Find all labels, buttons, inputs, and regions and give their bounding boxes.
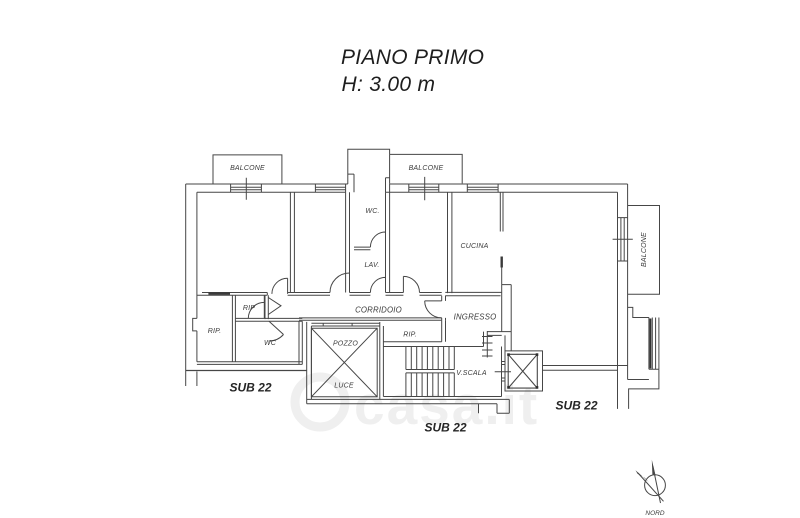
svg-text:CUCINA: CUCINA xyxy=(460,243,488,250)
svg-text:NORD: NORD xyxy=(645,510,664,517)
svg-text:INGRESSO: INGRESSO xyxy=(454,313,497,322)
svg-text:SUB 22: SUB 22 xyxy=(230,381,272,395)
svg-text:WC: WC xyxy=(264,340,277,347)
svg-text:RIP.: RIP. xyxy=(403,332,417,339)
svg-text:SUB 22: SUB 22 xyxy=(425,421,467,435)
svg-text:BALCONE: BALCONE xyxy=(641,232,648,267)
svg-text:V.SCALA: V.SCALA xyxy=(456,370,487,377)
svg-text:BALCONE: BALCONE xyxy=(230,165,265,172)
svg-text:PIANO PRIMO: PIANO PRIMO xyxy=(341,46,484,69)
svg-text:LAV.: LAV. xyxy=(364,262,379,269)
svg-text:CORRIDOIO: CORRIDOIO xyxy=(355,306,402,315)
svg-text:WC.: WC. xyxy=(365,208,379,215)
svg-text:RIP: RIP xyxy=(243,305,255,312)
svg-text:POZZO: POZZO xyxy=(333,341,358,348)
svg-text:LUCE: LUCE xyxy=(334,383,354,390)
svg-text:H: 3.00 m: H: 3.00 m xyxy=(342,73,436,96)
svg-text:RIP.: RIP. xyxy=(208,328,222,335)
svg-text:BALCONE: BALCONE xyxy=(409,165,444,172)
svg-text:SUB 22: SUB 22 xyxy=(556,399,598,413)
